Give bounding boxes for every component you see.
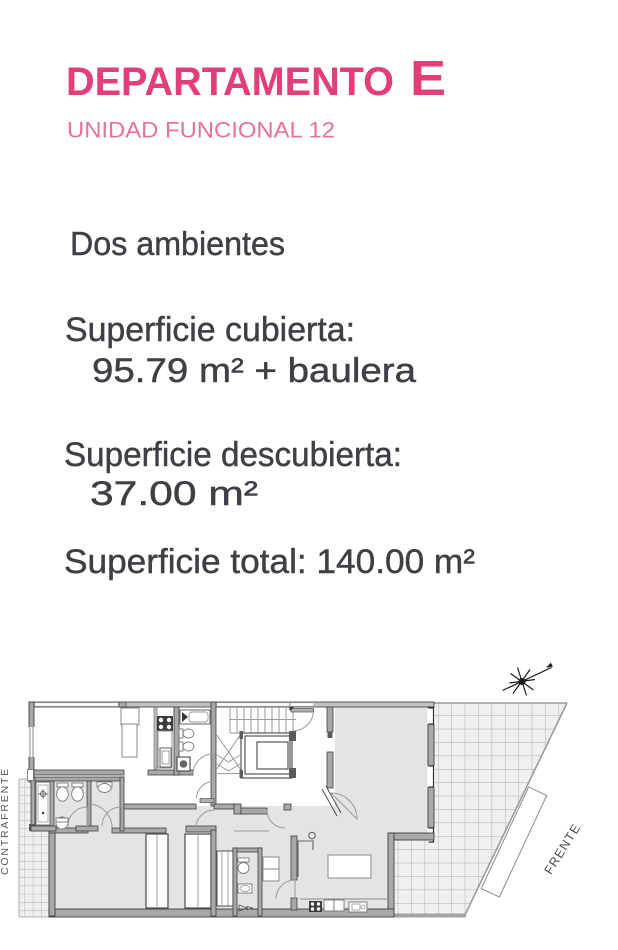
svg-text:CONTRAFRENTE: CONTRAFRENTE bbox=[0, 767, 11, 875]
svg-text:37.00 m²: 37.00 m² bbox=[90, 475, 258, 513]
svg-text:DEPARTAMENTO: DEPARTAMENTO bbox=[66, 60, 394, 104]
svg-text:Superficie total: 140.00 m²: Superficie total: 140.00 m² bbox=[64, 543, 475, 581]
svg-text:E: E bbox=[410, 52, 446, 106]
svg-text:Superficie cubierta:: Superficie cubierta: bbox=[65, 311, 355, 349]
svg-text:FRENTE: FRENTE bbox=[542, 821, 584, 877]
svg-text:95.79 m² + baulera: 95.79 m² + baulera bbox=[92, 352, 416, 390]
svg-text:Superficie descubierta:: Superficie descubierta: bbox=[64, 436, 402, 474]
svg-text:UNIDAD FUNCIONAL 12: UNIDAD FUNCIONAL 12 bbox=[67, 118, 335, 143]
svg-text:Dos ambientes: Dos ambientes bbox=[70, 225, 285, 262]
